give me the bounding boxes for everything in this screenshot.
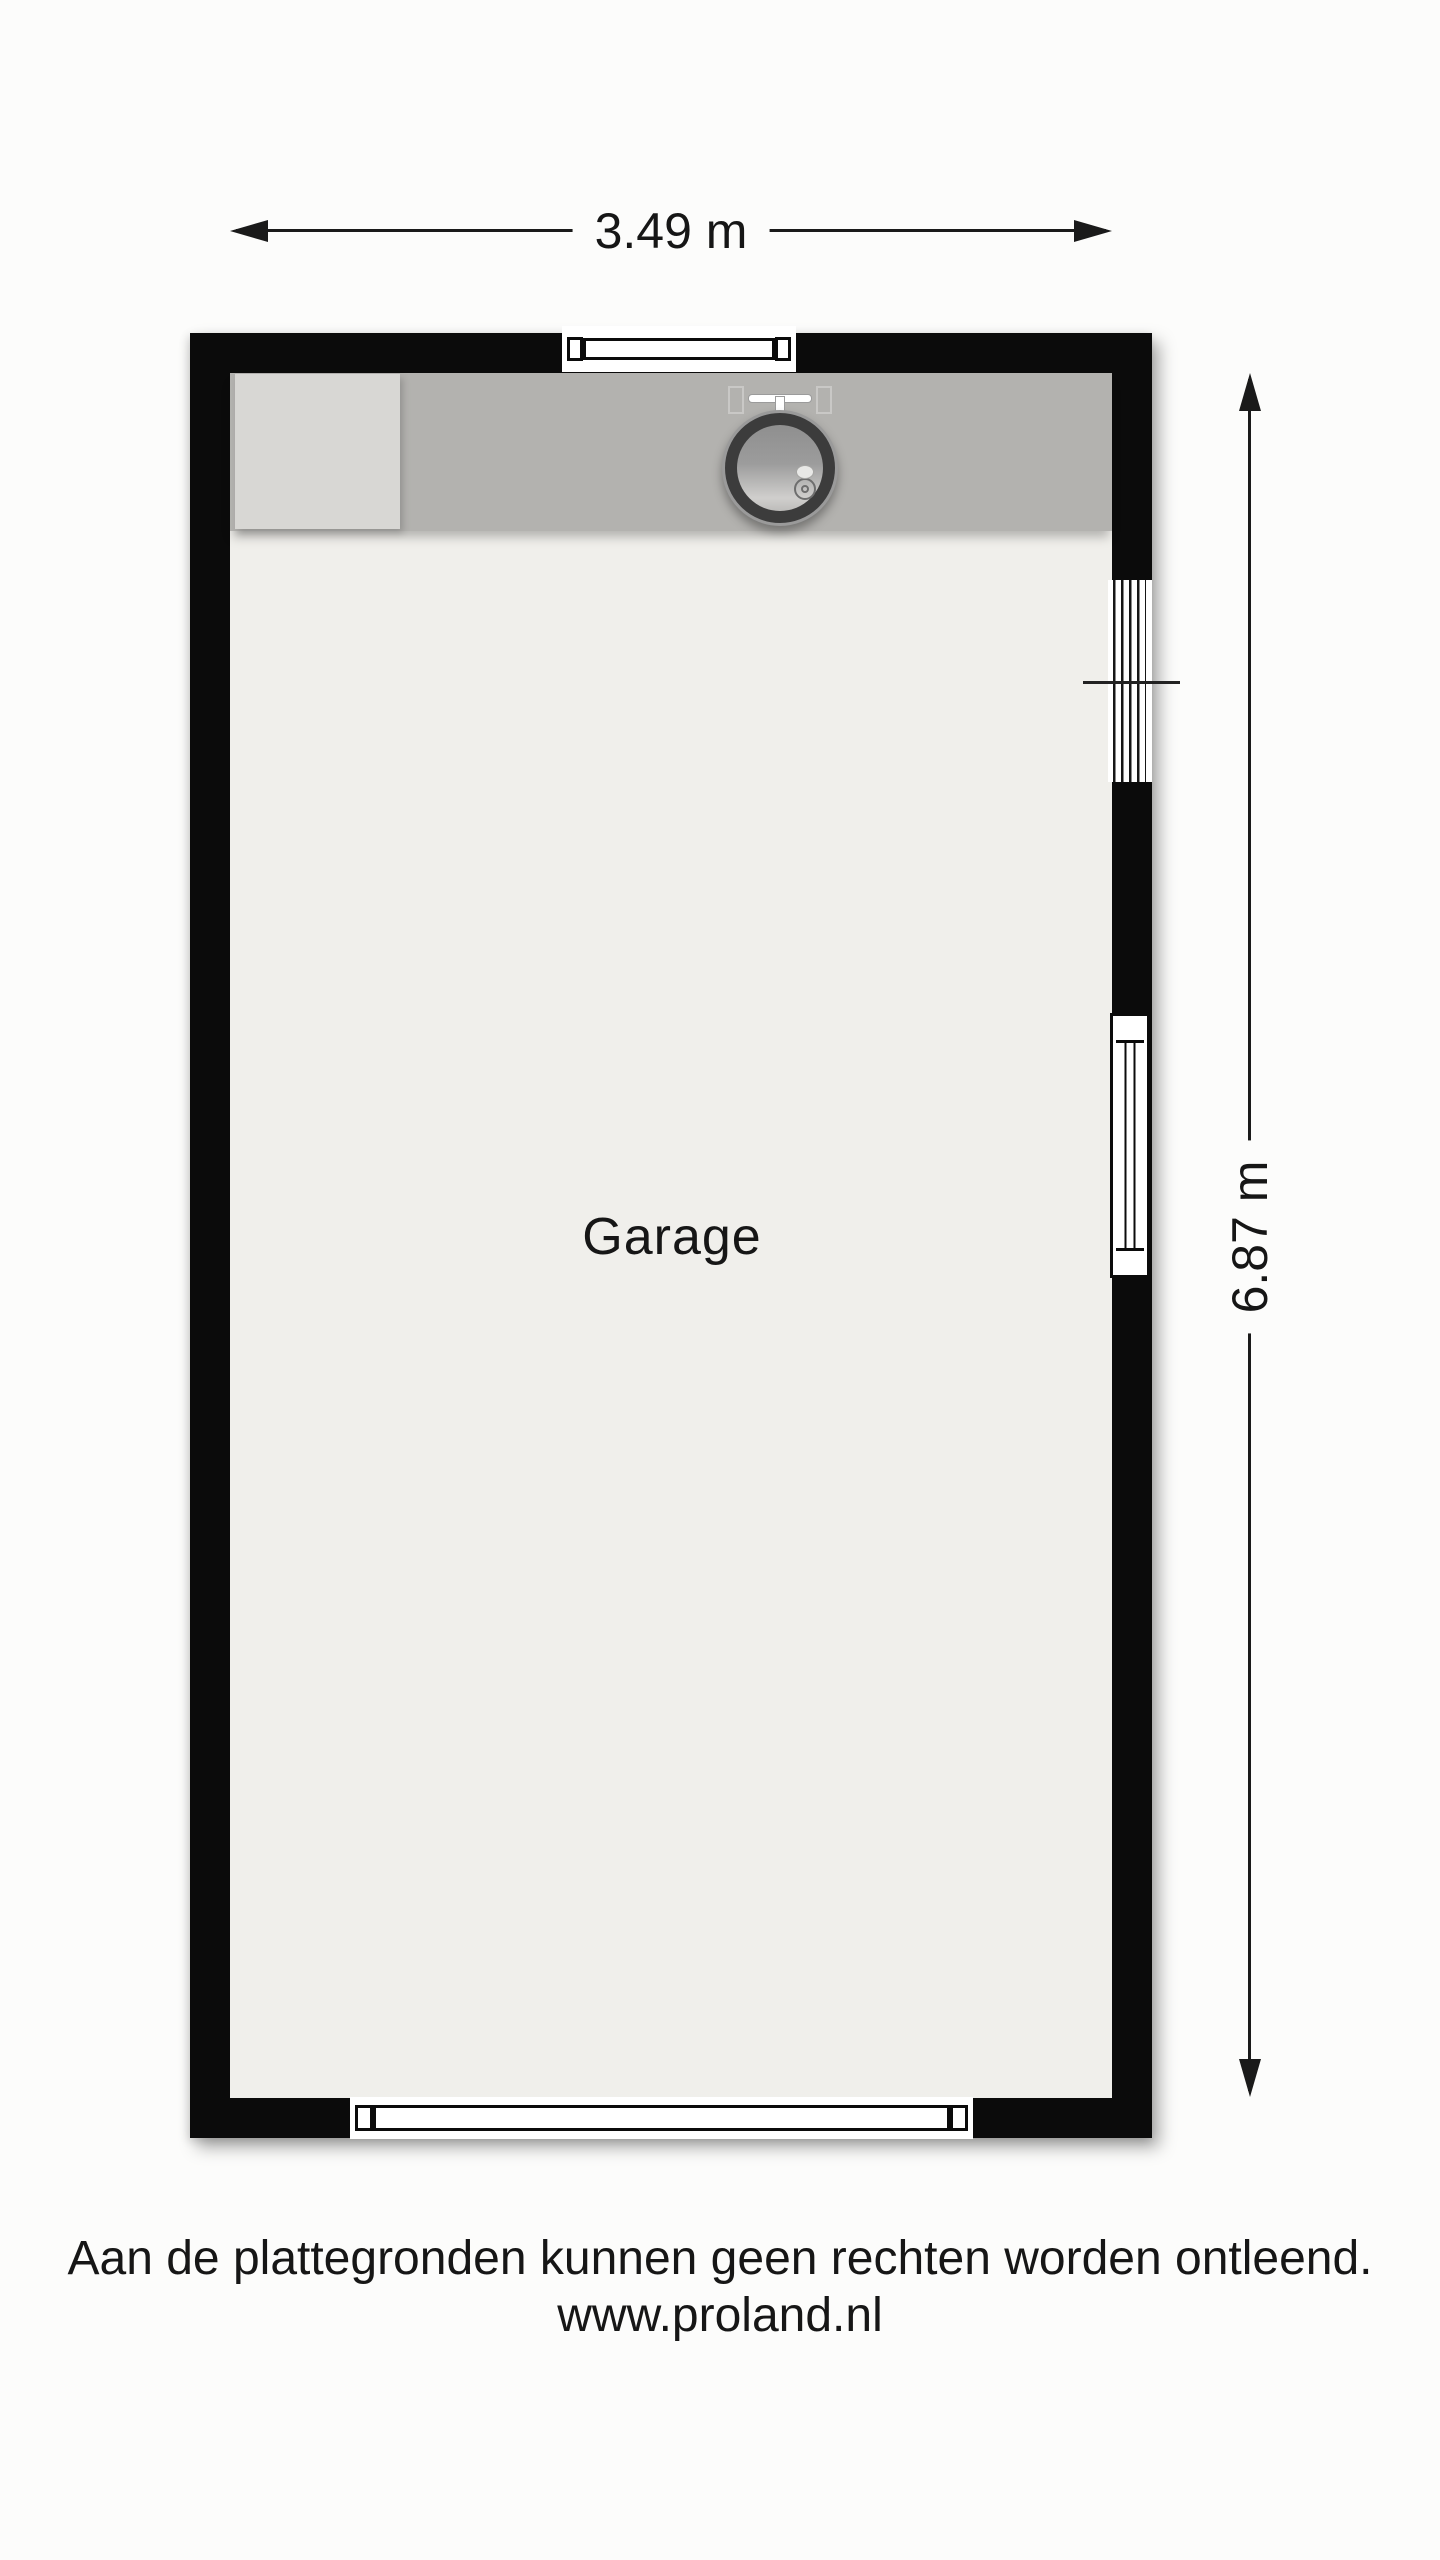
arrow-right-icon (1074, 220, 1112, 242)
disclaimer-text: Aan de plattegronden kunnen geen rechten… (0, 2230, 1440, 2287)
floor-plan: Garage (190, 333, 1152, 2138)
faucet-handle-left-icon (728, 386, 744, 414)
room-label: Garage (582, 1207, 761, 1267)
sash-mullion-icon (1125, 1043, 1136, 1248)
width-dimension-label: 3.49 m (573, 202, 770, 260)
window-pane-icon (583, 338, 775, 360)
window-cap-icon (775, 337, 791, 361)
garage-door (350, 2097, 973, 2139)
door-cap-icon (950, 2105, 968, 2131)
width-dimension: 3.49 m (230, 208, 1112, 254)
height-dimension-label: 6.87 m (1221, 1141, 1279, 1334)
window-sill-line (1083, 681, 1180, 684)
footer: Aan de plattegronden kunnen geen rechten… (0, 2230, 1440, 2344)
door-cap-icon (355, 2105, 373, 2131)
faucet-handle-right-icon (816, 386, 832, 414)
height-dimension: 6.87 m (1227, 373, 1273, 2097)
appliance (235, 374, 400, 529)
faucet-foot-icon (796, 465, 814, 479)
arrow-down-icon (1239, 2059, 1261, 2097)
window-right-lower (1110, 1013, 1150, 1278)
sink-rim-icon (722, 410, 838, 526)
arrow-left-icon (230, 220, 268, 242)
window-cap-icon (567, 337, 583, 361)
door-pane-icon (373, 2105, 950, 2131)
arrow-up-icon (1239, 373, 1261, 411)
window-top (562, 326, 796, 372)
sink-icon (700, 378, 860, 558)
sink-drain-icon (794, 478, 816, 500)
website-text: www.proland.nl (0, 2287, 1440, 2344)
sash-cap-bottom-icon (1116, 1248, 1144, 1251)
